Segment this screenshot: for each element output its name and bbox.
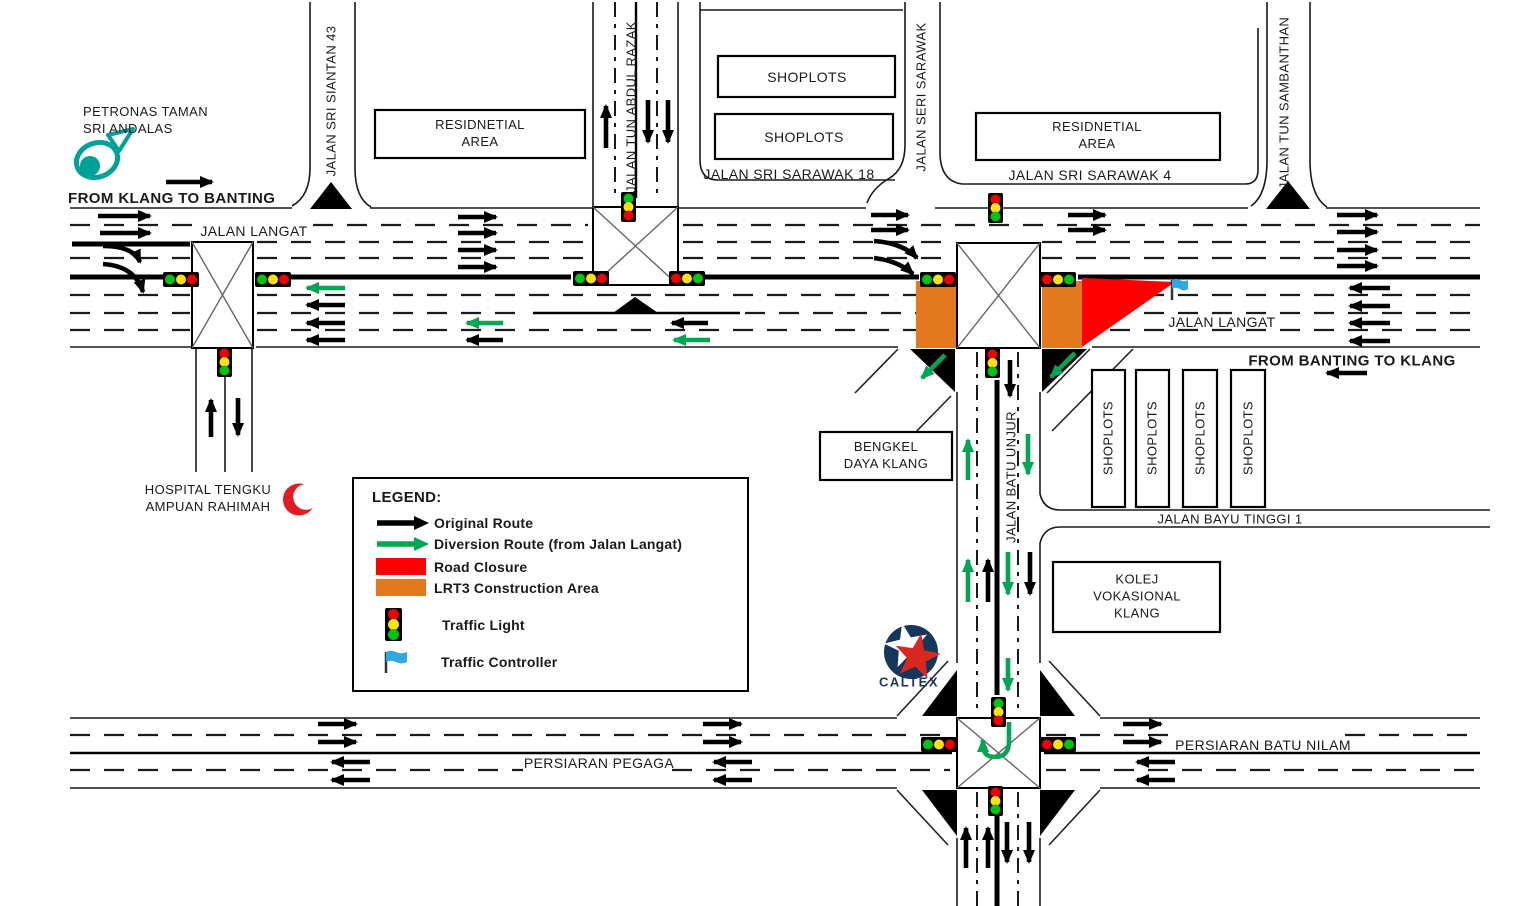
legend: LEGEND: Original Route Diversion Route (…	[352, 477, 749, 692]
from-klang-to-banting-label: FROM KLANG TO BANTING	[68, 190, 275, 207]
shoplots-v-label-1: SHOPLOTS	[1101, 401, 1116, 475]
construction-area-east	[1042, 281, 1082, 348]
traffic-light-icon	[921, 737, 957, 752]
median-island-triangle	[613, 297, 658, 313]
black-arrow-icon	[376, 516, 434, 530]
junction-box-batu-unjur	[957, 243, 1040, 348]
jalan-batu-unjur-label: JALAN BATU UNJUR	[1004, 411, 1019, 543]
legend-item-diversion-route: Diversion Route (from Jalan Langat)	[376, 536, 682, 552]
legend-title: LEGEND:	[372, 489, 442, 506]
traffic-light-icon	[1040, 272, 1076, 287]
traffic-light-icon	[573, 271, 609, 286]
traffic-light-icon	[985, 348, 1000, 378]
traffic-light-icon	[1040, 737, 1076, 752]
junction-box-hospital	[192, 242, 253, 348]
persiaran-pegaga-label: PERSIARAN PEGAGA	[524, 755, 674, 771]
traffic-diversion-map: PETRONAS TAMANSRI ANDALAS FROM KLANG TO …	[0, 0, 1536, 906]
jalan-langat-label-east: JALAN LANGAT	[1168, 314, 1275, 330]
caltex-logo	[881, 619, 944, 680]
traffic-controller-flag-icon	[1172, 279, 1188, 300]
red-crescent-icon	[283, 484, 319, 516]
traffic-light-icon	[621, 192, 636, 222]
traffic-light-icon	[217, 347, 232, 377]
shoplots-label-2: SHOPLOTS	[764, 129, 843, 145]
green-arrow-icon	[376, 537, 434, 551]
traffic-light-icon	[988, 786, 1003, 816]
residential-area-2-label: RESIDNETIALAREA	[1052, 119, 1142, 153]
traffic-light-icon	[255, 272, 291, 287]
traffic-light-icon	[669, 271, 705, 286]
traffic-light-icon	[920, 272, 956, 287]
shoplots-v-label-3: SHOPLOTS	[1193, 401, 1208, 475]
shoplots-v-label-4: SHOPLOTS	[1241, 401, 1256, 475]
from-banting-to-klang-label: FROM BANTING TO KLANG	[1248, 353, 1455, 370]
traffic-light-icon	[991, 697, 1006, 727]
traffic-light-icon	[988, 193, 1003, 223]
persiaran-batu-nilam-label: PERSIARAN BATU NILAM	[1175, 737, 1351, 753]
traffic-light-icon	[163, 272, 199, 287]
blue-flag-icon	[376, 649, 441, 675]
jalan-sri-siantan-label: JALAN SRI SIANTAN 43	[324, 26, 339, 177]
residential-area-1-label: RESIDNETIALAREA	[435, 117, 525, 151]
road-end-triangles	[310, 181, 1310, 313]
jalan-langat-label-west: JALAN LANGAT	[200, 223, 307, 239]
hospital-label: HOSPITAL TENGKUAMPUAN RAHIMAH	[145, 482, 271, 516]
legend-item-construction: LRT3 Construction Area	[376, 579, 599, 596]
shoplots-label-1: SHOPLOTS	[767, 69, 846, 85]
jalan-sri-sarawak-4-label: JALAN SRI SARAWAK 4	[1009, 167, 1172, 183]
road-closure-swatch	[376, 558, 426, 575]
legend-item-traffic-light: Traffic Light	[376, 607, 525, 643]
road-persiaran-pegaga	[70, 718, 1480, 788]
jalan-sri-sarawak-18-label: JALAN SRI SARAWAK 18	[703, 166, 874, 182]
triangle-sri-siantan	[310, 182, 352, 209]
jalan-tun-abdul-razak-label: JALAN TUN ABDUL RAZAK	[624, 21, 639, 193]
legend-item-road-closure: Road Closure	[376, 558, 527, 575]
kolej-label: KOLEJVOKASIONALKLANG	[1093, 572, 1181, 623]
legend-item-traffic-controller: Traffic Controller	[376, 649, 557, 675]
shoplots-v-label-2: SHOPLOTS	[1145, 401, 1160, 475]
bengkel-label: BENGKELDAYA KLANG	[844, 439, 928, 473]
petronas-logo	[71, 129, 133, 183]
legend-item-original-route: Original Route	[376, 515, 533, 531]
jalan-bayu-tinggi-label: JALAN BAYU TINGGI 1	[1157, 512, 1302, 527]
caltex-label: CALTEX	[879, 675, 939, 690]
construction-swatch	[376, 579, 426, 596]
petronas-label: PETRONAS TAMANSRI ANDALAS	[83, 103, 208, 137]
construction-area-west	[916, 281, 956, 348]
traffic-light-icon	[376, 607, 442, 643]
jalan-seri-sarawak-label: JALAN SERI SARAWAK	[914, 22, 929, 171]
jalan-tun-sambanthan-label: JALAN TUN SAMBANTHAN	[1277, 17, 1292, 189]
junction-box-persiaran	[957, 718, 1040, 788]
